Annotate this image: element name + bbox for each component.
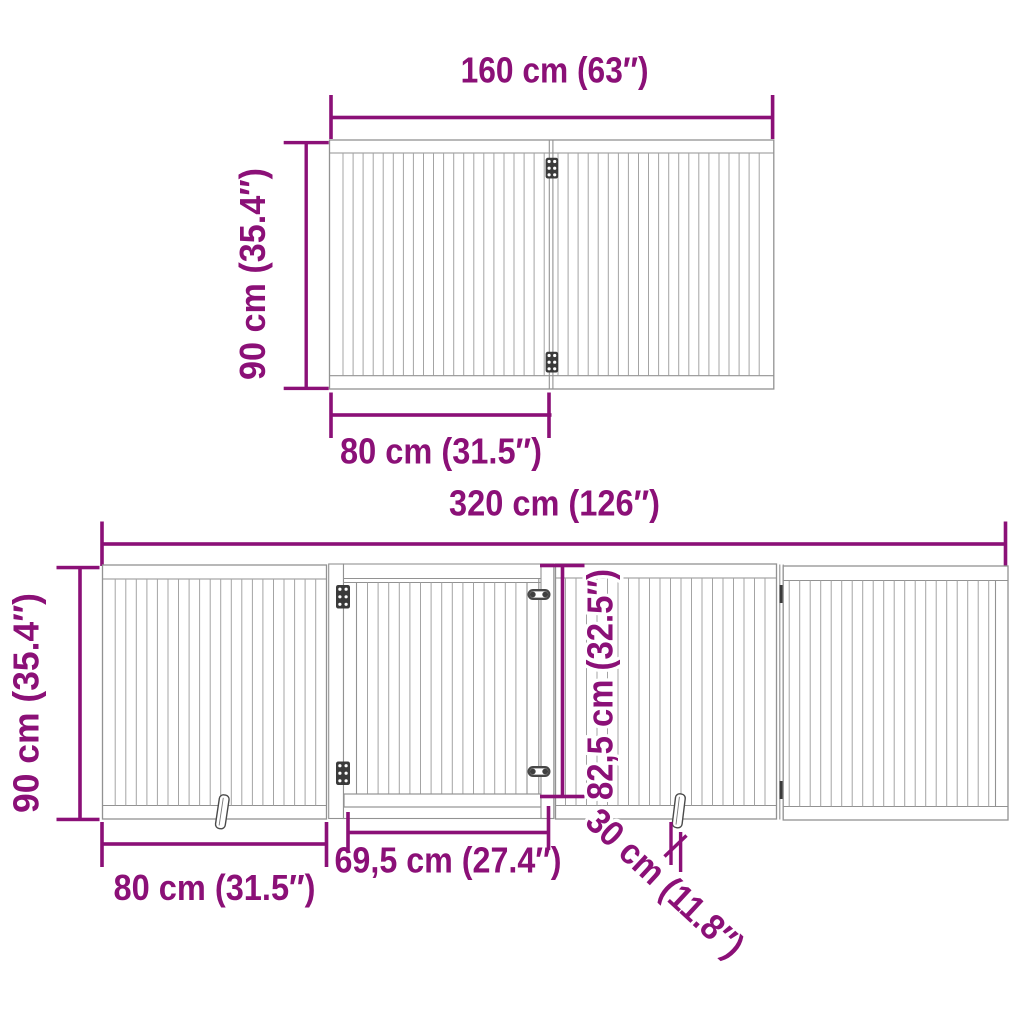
svg-text:69,5 cm (27.4″): 69,5 cm (27.4″)	[335, 840, 562, 881]
svg-text:90 cm (35.4″): 90 cm (35.4″)	[6, 593, 47, 813]
svg-text:82,5 cm (32.5″): 82,5 cm (32.5″)	[580, 569, 621, 800]
svg-text:80 cm (31.5″): 80 cm (31.5″)	[340, 431, 542, 472]
svg-text:80 cm (31.5″): 80 cm (31.5″)	[114, 867, 316, 908]
svg-text:160 cm (63″): 160 cm (63″)	[461, 50, 649, 91]
svg-text:320 cm (126″): 320 cm (126″)	[449, 483, 660, 524]
svg-text:90 cm (35.4″): 90 cm (35.4″)	[232, 168, 273, 380]
